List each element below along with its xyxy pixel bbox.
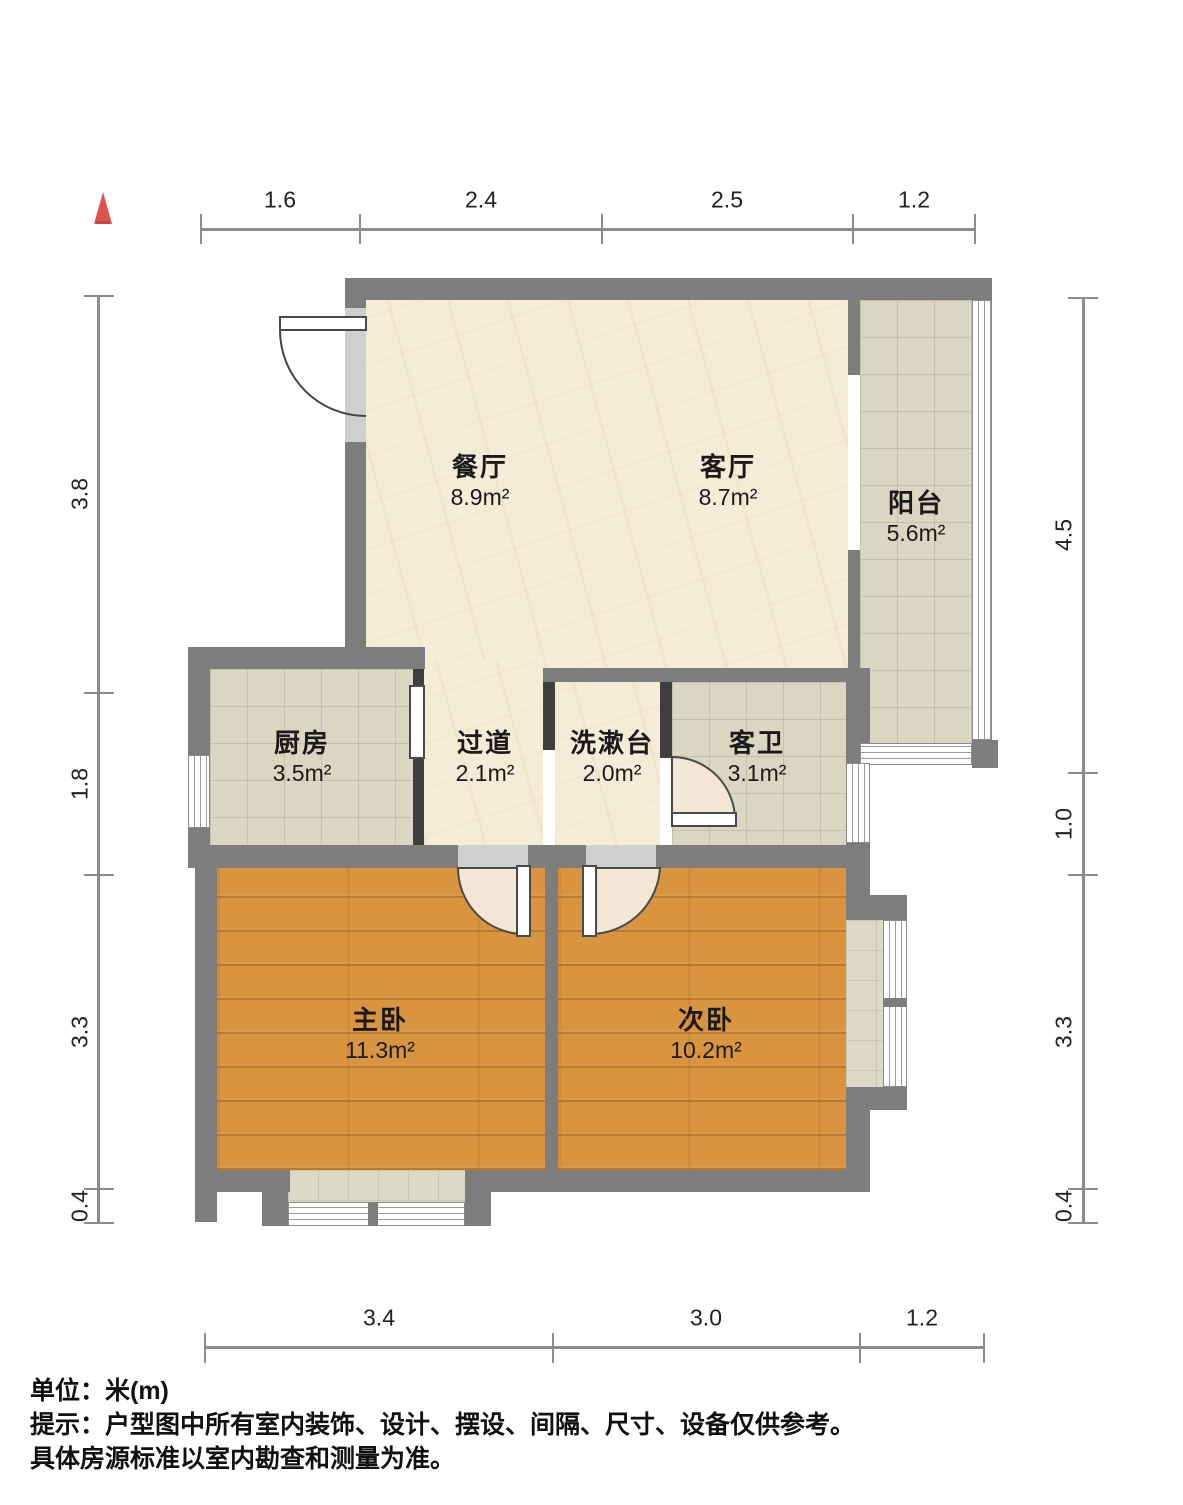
dim-line-bottom bbox=[205, 1346, 984, 1349]
footer-notes: 单位：米(m) 提示：户型图中所有室内装饰、设计、摆设、间隔、尺寸、设备仅供参考… bbox=[30, 1374, 855, 1476]
room-area: 3.5m² bbox=[273, 758, 332, 788]
dim-tick bbox=[1068, 772, 1098, 774]
room-name: 过道 bbox=[456, 728, 515, 758]
room-name: 次卧 bbox=[670, 1005, 742, 1035]
dim-tick bbox=[974, 214, 976, 244]
dim-tick bbox=[359, 214, 361, 244]
dim-tick bbox=[601, 214, 603, 244]
wall-second-bottom bbox=[545, 1170, 870, 1192]
dim-line-left bbox=[97, 296, 100, 1224]
dim-tick bbox=[983, 1333, 985, 1363]
room-area: 5.6m² bbox=[887, 518, 946, 548]
dim-tick bbox=[84, 874, 114, 876]
dim-tick bbox=[859, 1333, 861, 1363]
dim-tick bbox=[1068, 297, 1098, 299]
wall-washstand-left-stub bbox=[543, 682, 555, 750]
north-arrow-icon bbox=[94, 192, 112, 224]
entry-door-opening bbox=[345, 308, 366, 442]
room-label-second: 次卧 10.2m² bbox=[670, 1005, 742, 1065]
room-area: 11.3m² bbox=[345, 1035, 415, 1065]
floor-dining-living bbox=[366, 300, 848, 672]
guest-bath-window bbox=[846, 763, 870, 843]
master-door-opening bbox=[458, 845, 528, 868]
room-area: 8.7m² bbox=[699, 482, 758, 512]
wall-kitchen-top bbox=[188, 647, 425, 669]
room-label-hallway: 过道 2.1m² bbox=[456, 728, 515, 788]
room-name: 餐厅 bbox=[451, 452, 510, 482]
room-name: 洗漱台 bbox=[570, 728, 654, 758]
room-label-living: 客厅 8.7m² bbox=[699, 452, 758, 512]
dim-left-4: 0.4 bbox=[67, 1190, 94, 1222]
dim-tick bbox=[84, 295, 114, 297]
footer-tip-line2: 具体房源标准以室内勘查和测量为准。 bbox=[30, 1442, 855, 1476]
balcony-bottom-window bbox=[860, 743, 972, 765]
footer-unit-line: 单位：米(m) bbox=[30, 1374, 855, 1408]
dim-tick bbox=[1068, 1222, 1098, 1224]
dim-line-top bbox=[201, 228, 975, 231]
wall-bedroom-middle bbox=[545, 845, 558, 1192]
footer-tip-line1: 提示：户型图中所有室内装饰、设计、摆设、间隔、尺寸、设备仅供参考。 bbox=[30, 1408, 855, 1442]
dim-right-4: 0.4 bbox=[1051, 1190, 1078, 1222]
dim-bottom-3: 1.2 bbox=[906, 1305, 938, 1332]
wall-kitchen-right bbox=[413, 669, 424, 845]
dim-top-1: 1.6 bbox=[264, 187, 296, 214]
room-name: 阳台 bbox=[887, 488, 946, 518]
wall-balcony-divider-bottom bbox=[848, 550, 860, 672]
dim-tick bbox=[204, 1333, 206, 1363]
wall-bedroom-left bbox=[195, 868, 217, 1222]
wall-washstand-top bbox=[543, 668, 870, 682]
wall-washstand-right bbox=[660, 682, 672, 758]
dim-left-2: 1.8 bbox=[67, 768, 94, 800]
room-area: 10.2m² bbox=[670, 1035, 742, 1065]
second-bay-window-divider bbox=[883, 998, 907, 1007]
room-name: 厨房 bbox=[273, 728, 332, 758]
room-label-master: 主卧 11.3m² bbox=[345, 1005, 415, 1065]
dim-tick bbox=[200, 214, 202, 244]
dim-left-3: 3.3 bbox=[67, 1016, 94, 1048]
wall-top bbox=[345, 278, 992, 300]
room-name: 客卫 bbox=[728, 728, 787, 758]
dim-tick bbox=[1068, 874, 1098, 876]
wall-master-bay-right bbox=[465, 1192, 491, 1226]
dim-right-3: 3.3 bbox=[1051, 1016, 1078, 1048]
wall-master-bottom-left bbox=[195, 1170, 290, 1192]
dim-right-1: 4.5 bbox=[1051, 519, 1078, 551]
dim-top-4: 1.2 bbox=[898, 187, 930, 214]
room-area: 8.9m² bbox=[451, 482, 510, 512]
dim-bottom-1: 3.4 bbox=[363, 1305, 395, 1332]
dim-top-3: 2.5 bbox=[711, 187, 743, 214]
room-label-guest-bath: 客卫 3.1m² bbox=[728, 728, 787, 788]
balcony-right-window bbox=[972, 300, 992, 740]
second-door-opening bbox=[586, 845, 656, 868]
wall-master-bay-left bbox=[262, 1192, 288, 1226]
wall-second-bay-bottom bbox=[846, 1087, 907, 1110]
room-name: 客厅 bbox=[699, 452, 758, 482]
room-label-kitchen: 厨房 3.5m² bbox=[273, 728, 332, 788]
dim-bottom-2: 3.0 bbox=[690, 1305, 722, 1332]
dim-tick bbox=[552, 1333, 554, 1363]
room-label-balcony: 阳台 5.6m² bbox=[887, 488, 946, 548]
room-area: 3.1m² bbox=[728, 758, 787, 788]
dim-tick bbox=[84, 692, 114, 694]
room-label-washstand: 洗漱台 2.0m² bbox=[570, 728, 654, 788]
dim-line-right bbox=[1082, 298, 1085, 1224]
room-label-dining: 餐厅 8.9m² bbox=[451, 452, 510, 512]
room-name: 主卧 bbox=[345, 1005, 415, 1035]
floorplan-canvas: 餐厅 8.9m² 客厅 8.7m² 阳台 5.6m² 厨房 3.5m² 过道 2… bbox=[0, 0, 1183, 1505]
floor-second-bay bbox=[846, 920, 883, 1087]
wall-bedroom-zone-top bbox=[195, 845, 870, 868]
dim-top-2: 2.4 bbox=[465, 187, 497, 214]
north-arrow-base bbox=[96, 221, 110, 224]
wall-balcony-corner bbox=[972, 740, 998, 768]
dim-tick bbox=[84, 1222, 114, 1224]
room-area: 2.0m² bbox=[570, 758, 654, 788]
dim-tick bbox=[852, 214, 854, 244]
wall-second-bay-top bbox=[846, 895, 907, 920]
dim-left-1: 3.8 bbox=[67, 478, 94, 510]
master-bay-window-divider bbox=[368, 1202, 378, 1226]
wall-balcony-divider-top bbox=[848, 300, 860, 375]
dim-right-2: 1.0 bbox=[1051, 808, 1078, 840]
floor-master-bay bbox=[288, 1170, 465, 1204]
kitchen-window bbox=[188, 755, 210, 828]
room-area: 2.1m² bbox=[456, 758, 515, 788]
